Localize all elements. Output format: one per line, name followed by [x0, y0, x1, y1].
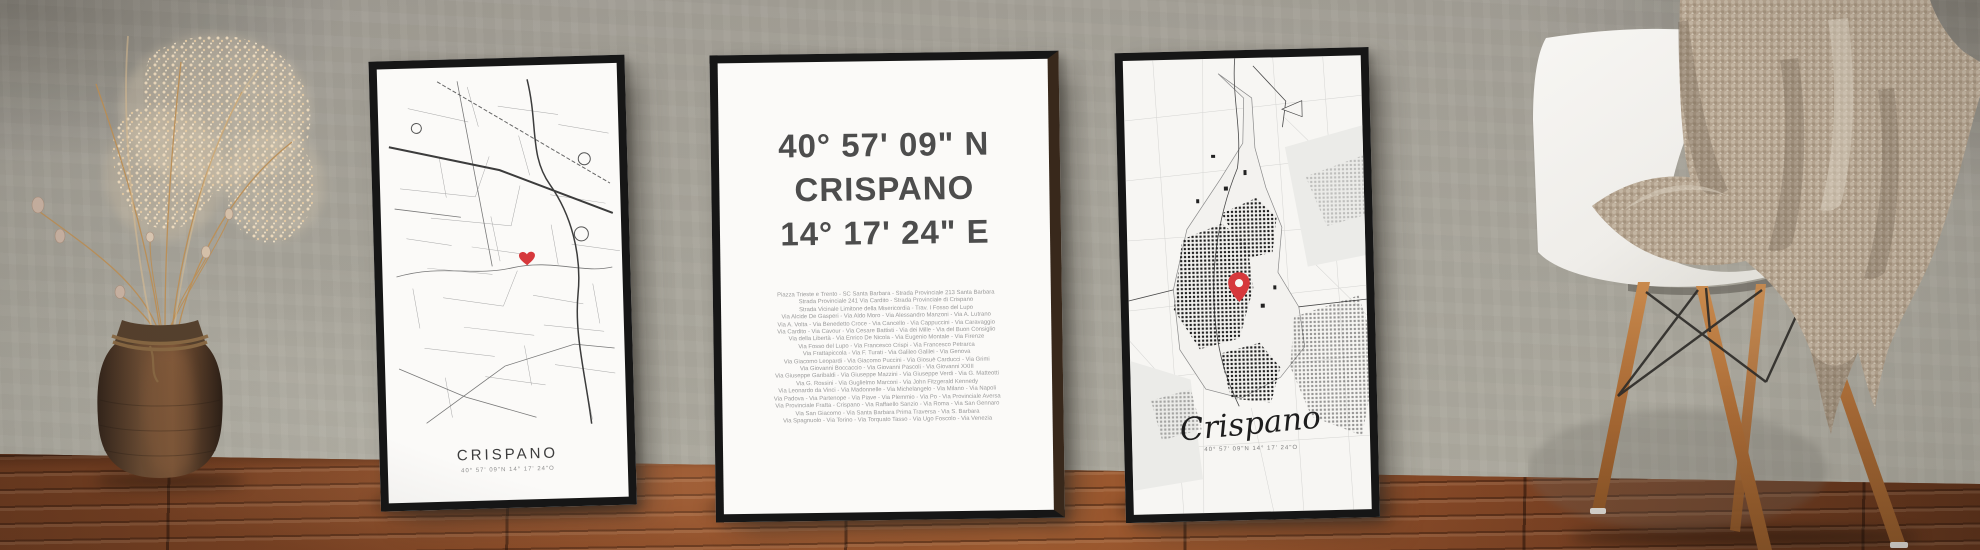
poster-middle: 40° 57' 09" N CRISPANO 14° 17' 24" E Pia… [709, 51, 1064, 523]
heart-icon [519, 252, 535, 266]
gypsophila-clouds [105, 35, 325, 243]
chair-with-blanket [1528, 0, 1980, 550]
city-text: CRISPANO [719, 165, 1050, 214]
vase [97, 320, 222, 478]
chair-struts [1618, 288, 1808, 396]
minor-streets [397, 83, 624, 425]
scene: CRISPANO 40° 57' 09"N 14° 17' 24"O 40° 5… [0, 0, 1980, 550]
street-list: Piazza Trieste e Trento - SC Santa Barba… [721, 289, 1053, 427]
poster-right: Crispano 40° 57' 09"N 14° 17' 24"O [1115, 47, 1380, 523]
poster-middle-content: 40° 57' 09" N CRISPANO 14° 17' 24" E Pia… [718, 59, 1054, 515]
railway-line [437, 77, 610, 188]
poster-right-title: Crispano [1179, 399, 1323, 448]
secondary-roads [391, 77, 616, 424]
longitude-text: 14° 17' 24" E [720, 209, 1051, 258]
dried-flower-arrangement [0, 0, 340, 550]
main-roads [387, 77, 619, 429]
roundabouts [411, 119, 592, 246]
poster-left-map [377, 63, 629, 504]
chair-wall-shadow [1528, 410, 1828, 530]
flag-shape [1282, 101, 1302, 117]
poster-left: CRISPANO 40° 57' 09"N 14° 17' 24"O [368, 55, 636, 512]
latitude-text: 40° 57' 09" N [718, 121, 1049, 170]
poster-right-caption: Crispano 40° 57' 09"N 14° 17' 24"O [1131, 403, 1370, 455]
